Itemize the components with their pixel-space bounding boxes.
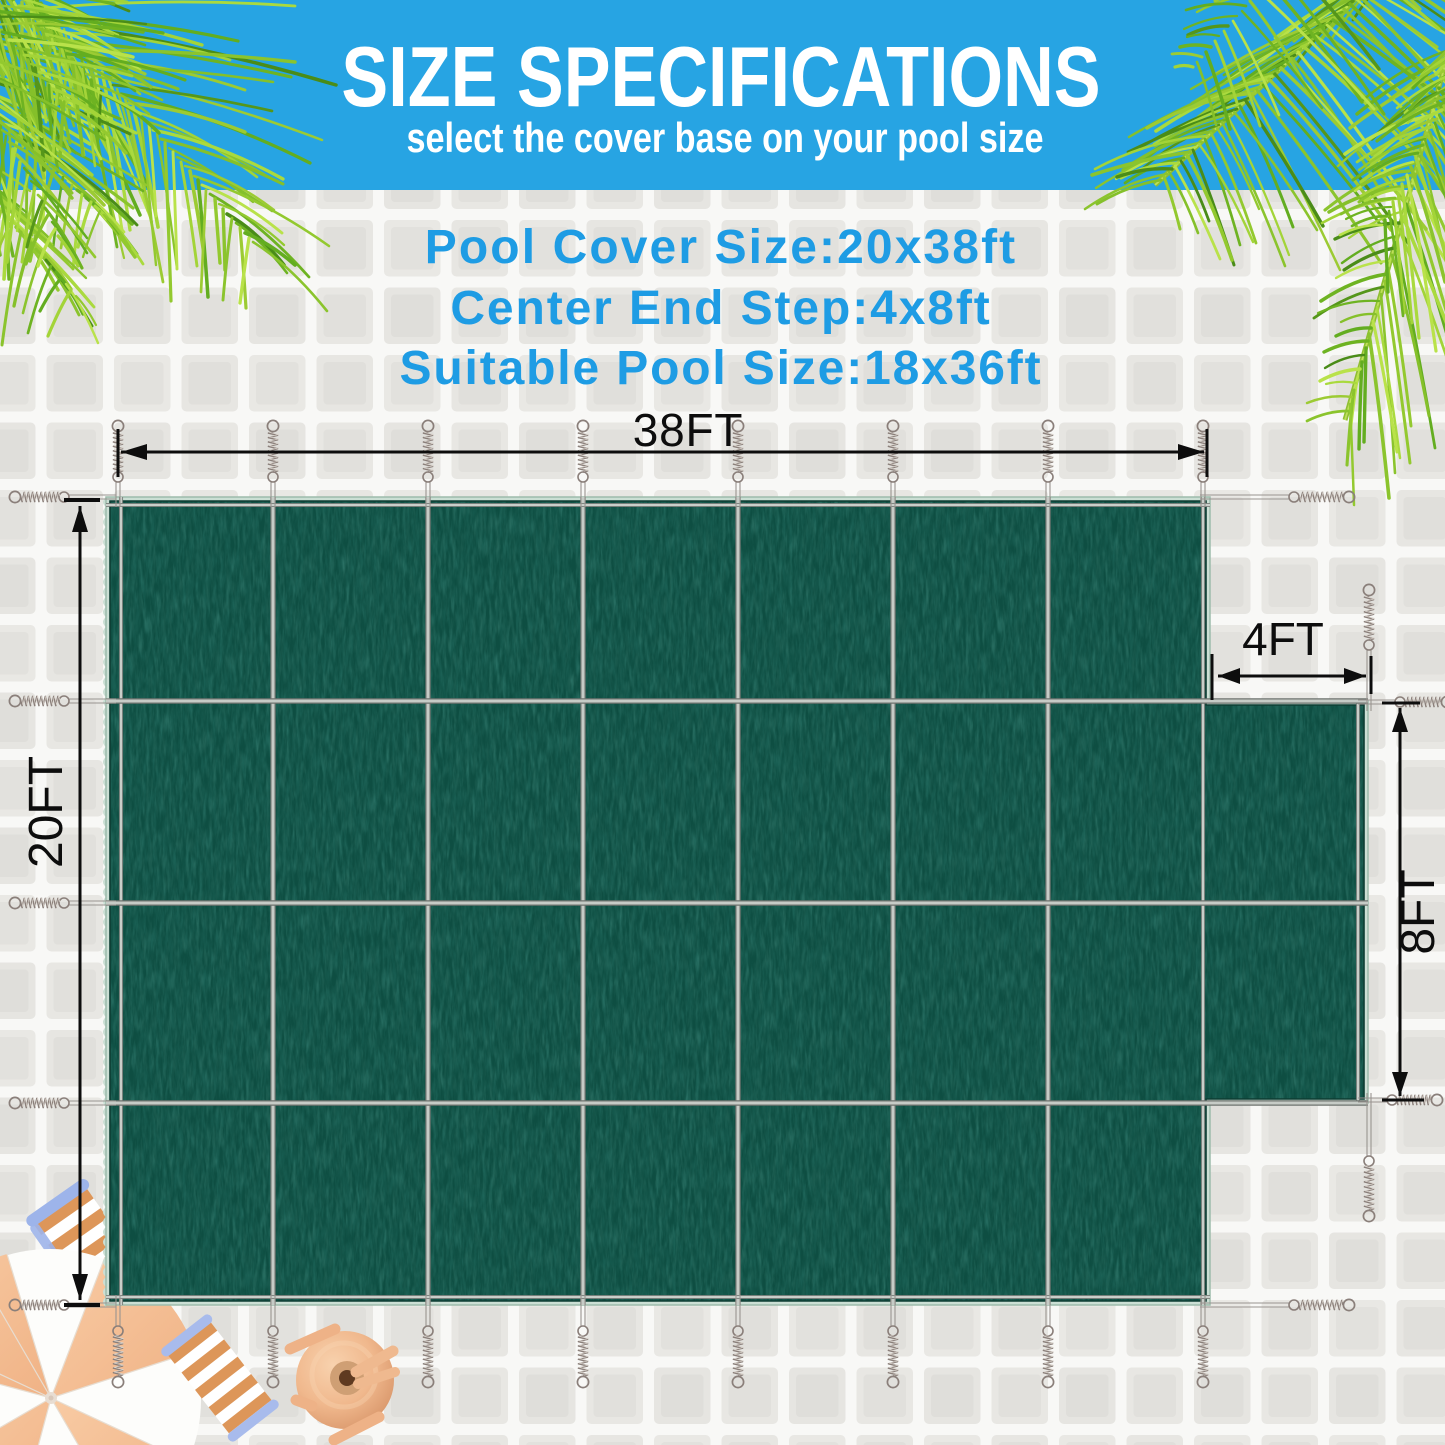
svg-text:4FT: 4FT: [1242, 613, 1324, 665]
svg-text:8FT: 8FT: [1392, 869, 1445, 954]
svg-text:SIZE SPECIFICATIONS: SIZE SPECIFICATIONS: [341, 29, 1100, 125]
svg-text:Pool Cover Size:20x38ft: Pool Cover Size:20x38ft: [425, 221, 1018, 274]
svg-text:38FT: 38FT: [633, 404, 744, 456]
svg-text:select the cover base on your: select the cover base on your pool size: [406, 115, 1043, 162]
svg-text:Center End Step:4x8ft: Center End Step:4x8ft: [450, 282, 991, 335]
svg-text:Suitable Pool Size:18x36ft: Suitable Pool Size:18x36ft: [400, 342, 1043, 395]
svg-text:20FT: 20FT: [20, 756, 73, 868]
